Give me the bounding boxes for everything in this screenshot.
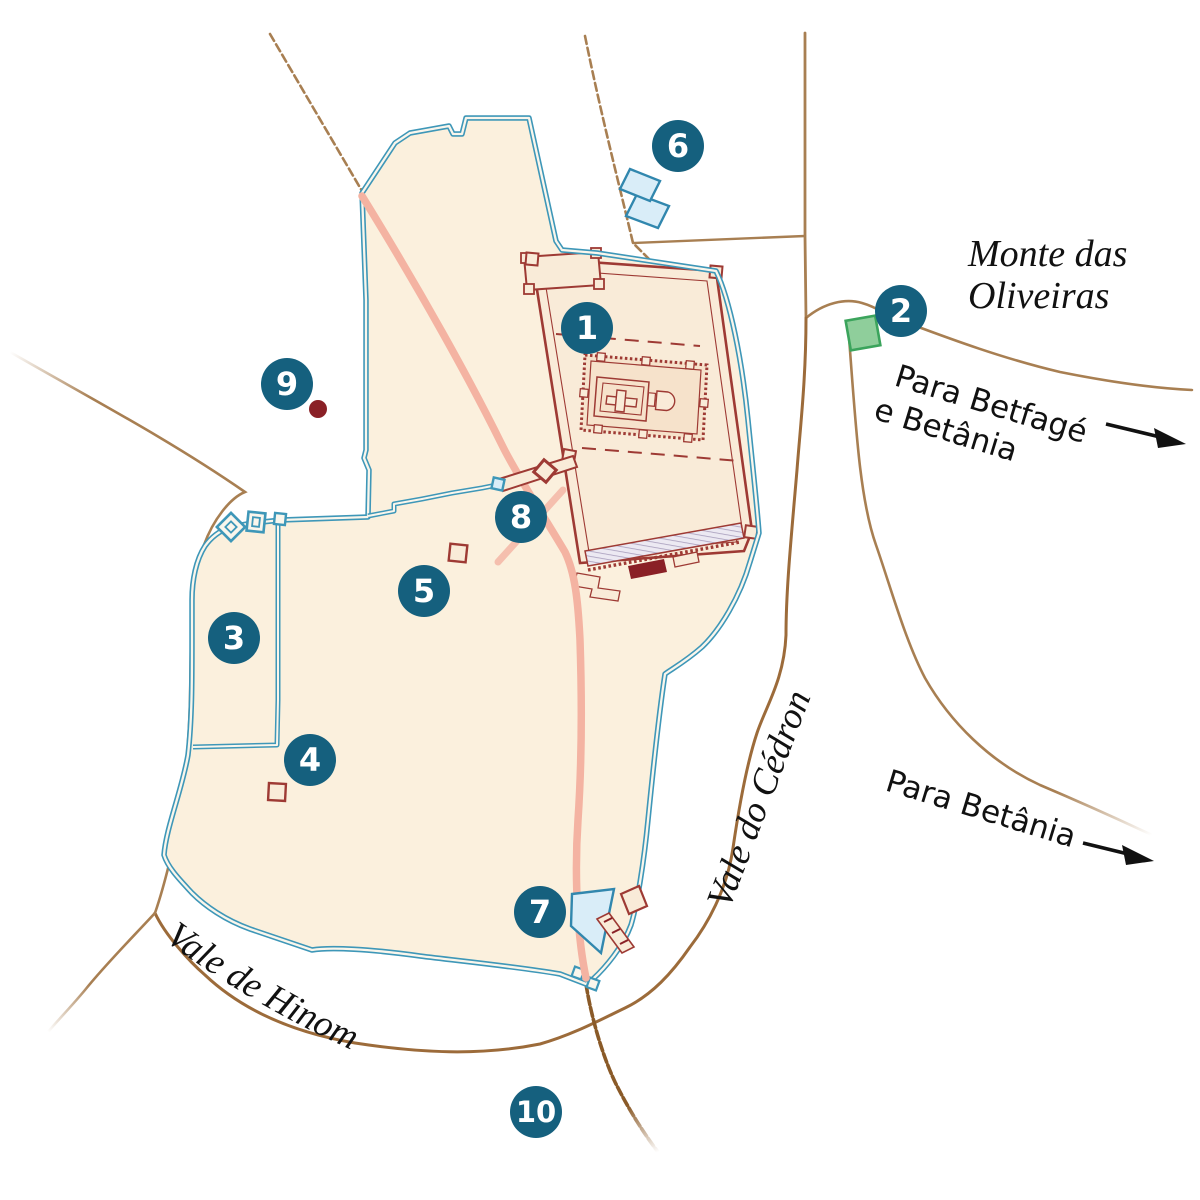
label-monte-das-oliveiras-line2: Oliveiras [968,275,1109,317]
causeway-gate-teal [491,477,504,490]
gate-tower-small [274,513,286,525]
marker-number: 8 [510,498,532,536]
marker-1: 1 [561,302,613,354]
marker-number: 4 [299,741,321,779]
marker-5: 5 [398,565,450,617]
marker-number: 1 [576,309,598,347]
site-square-4 [268,783,286,801]
marker-number: 3 [223,619,245,657]
antonia-tower [594,279,604,289]
marker-number: 2 [890,292,912,330]
label-monte-das-oliveiras-line1: Monte das [967,233,1127,275]
marker-3: 3 [208,612,260,664]
jerusalem-map: 1 2 3 4 5 6 7 8 [0,0,1200,1200]
marker-number: 6 [667,127,689,165]
antonia-tower [524,284,534,294]
marker-2: 2 [875,285,927,337]
marker-10: 10 [510,1086,562,1138]
marker-7: 7 [514,886,566,938]
marker-9: 9 [261,358,313,410]
marker-6: 6 [652,120,704,172]
altar-annex [647,393,655,407]
marker-8: 8 [495,491,547,543]
marker-number: 10 [516,1095,556,1129]
road-ridge-north [805,33,806,318]
marker-number: 9 [276,365,298,403]
marker-number: 5 [413,572,435,610]
gate-tower-square-core [252,517,260,527]
site-square-5 [449,544,468,563]
dark-dot [309,400,327,418]
map-canvas: 1 2 3 4 5 6 7 8 [0,0,1200,1200]
marker-number: 7 [529,893,551,931]
temple-building [615,390,626,412]
altar-d-shape [656,391,675,411]
marker-4: 4 [284,734,336,786]
platform-tower [525,252,538,265]
green-plot [846,316,881,351]
